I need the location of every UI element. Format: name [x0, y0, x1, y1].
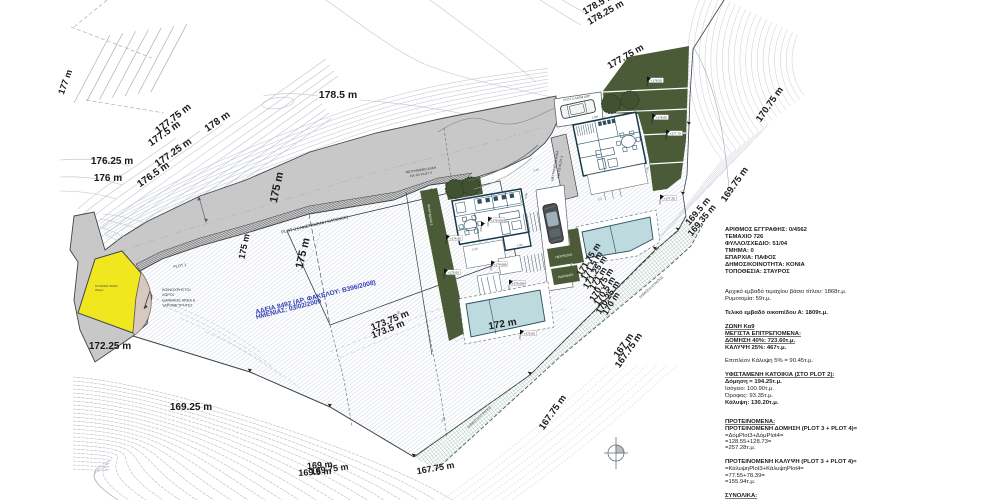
- svg-text:ΥΦΙΣΤΑΜΕΝΗ ΚΑΤΟΙΚΙΑ (ΣΤΟ PLOT: ΥΦΙΣΤΑΜΕΝΗ ΚΑΤΟΙΚΙΑ (ΣΤΟ PLOT 2):: [725, 372, 834, 378]
- svg-text:176 m: 176 m: [94, 173, 122, 184]
- svg-text:ΠΡΟΤΕΙΝΟΜΕΝΗ ΔΟΜΗΣΗ (PLOT 3 +: ΠΡΟΤΕΙΝΟΜΕΝΗ ΔΟΜΗΣΗ (PLOT 3 + PLOT 4)=: [725, 426, 858, 432]
- svg-text:ΜΕΓΙΣΤΑ ΕΠΙΤΡΕΠΟΜΕΝΑ:: ΜΕΓΙΣΤΑ ΕΠΙΤΡΕΠΟΜΕΝΑ:: [725, 331, 801, 337]
- svg-text:172.25 m: 172.25 m: [89, 341, 131, 352]
- svg-text:Ισόγειο: 100.90τ.μ.: Ισόγειο: 100.90τ.μ.: [725, 385, 774, 392]
- svg-text:ΧΩΡΟΙ: ΧΩΡΟΙ: [162, 293, 174, 297]
- svg-text:+175.00: +175.00: [448, 270, 460, 274]
- svg-text:176.25 m: 176.25 m: [91, 156, 133, 167]
- svg-text:=257.28τ.μ.: =257.28τ.μ.: [725, 445, 756, 451]
- svg-text:178.5 m: 178.5 m: [319, 89, 358, 101]
- svg-text:ΠΡΟΤΕΙΝΟΜΕΝΗ ΚΑΛΥΨΗ (PLOT 3 +: ΠΡΟΤΕΙΝΟΜΕΝΗ ΚΑΛΥΨΗ (PLOT 3 + PLOT 4)=: [725, 459, 857, 465]
- svg-text:GARBAGE AREA &: GARBAGE AREA &: [162, 298, 196, 302]
- svg-text:+178.00: +178.00: [656, 115, 668, 119]
- svg-text:ΚΟΙΝΟΧΡΗΣΤΟΙ: ΚΟΙΝΟΧΡΗΣΤΟΙ: [162, 288, 191, 292]
- svg-text:169.25 m: 169.25 m: [170, 402, 212, 413]
- svg-text:+177.20: +177.20: [664, 196, 676, 200]
- svg-text:=ΚάλυψηPlot3+ΚάλυψηPlot4=: =ΚάλυψηPlot3+ΚάλυψηPlot4=: [725, 465, 804, 472]
- svg-text:Όροφος: 93.35τ.μ.: Όροφος: 93.35τ.μ.: [724, 393, 773, 399]
- svg-text:Τελικό εμβαδό οικοπέδου Α: 180: Τελικό εμβαδό οικοπέδου Α: 1809τ.μ.: [725, 310, 828, 316]
- svg-text:Αρχικό εμβαδό τεμαχίου βάσει τ: Αρχικό εμβαδό τεμαχίου βάσει τίτλου: 186…: [725, 288, 847, 295]
- svg-text:ΔΟΜΗΣΗ 40%: 723.60τ.μ.: ΔΟΜΗΣΗ 40%: 723.60τ.μ.: [725, 338, 796, 344]
- svg-text:=ΔόμPlot3+ΔόμPlot4=: =ΔόμPlot3+ΔόμPlot4=: [725, 432, 784, 439]
- svg-text:ΔΗΜΟΣ/ΚΟΙΝΟΤΗΤΑ: ΚΟΝΙΑ: ΔΗΜΟΣ/ΚΟΙΝΟΤΗΤΑ: ΚΟΝΙΑ: [725, 262, 806, 268]
- svg-text:ΚΑΛΥΨΗ 25%: 467τ.μ.: ΚΑΛΥΨΗ 25%: 467τ.μ.: [725, 345, 787, 351]
- svg-text:ΥΔΡΟΜΕΤΡΗΤΕΣ: ΥΔΡΟΜΕΤΡΗΤΕΣ: [162, 304, 193, 308]
- svg-text:ΑΡΙΘΜΟΣ ΕΓΓΡΑΦΗΣ: 0/4562: ΑΡΙΘΜΟΣ ΕΓΓΡΑΦΗΣ: 0/4562: [725, 227, 808, 233]
- svg-text:ΦΥΛΛΟ/ΣΧΕΔΙΟ: 51/04: ΦΥΛΛΟ/ΣΧΕΔΙΟ: 51/04: [725, 241, 788, 247]
- svg-text:ΣΥΝΟΛΙΚΑ:: ΣΥΝΟΛΙΚΑ:: [725, 493, 757, 499]
- svg-text:+177.70: +177.70: [670, 131, 682, 135]
- svg-text:=155.94τ.μ.: =155.94τ.μ.: [725, 479, 756, 485]
- svg-text:169.5 m: 169.5 m: [298, 466, 332, 478]
- svg-text:+174.50: +174.50: [450, 236, 462, 240]
- svg-text:+175.050: +175.050: [491, 218, 504, 222]
- svg-text:Δόμηση = 194.25τ.μ.: Δόμηση = 194.25τ.μ.: [725, 379, 782, 385]
- svg-text:ΕΠΑΡΧΙΑ: ΠΑΦΟΣ: ΕΠΑΡΧΙΑ: ΠΑΦΟΣ: [725, 255, 777, 261]
- svg-text:Επιπλέον Κάλυψη 5% = 90.45τ.μ.: Επιπλέον Κάλυψη 5% = 90.45τ.μ.: [725, 357, 814, 364]
- svg-text:20sqm: 20sqm: [95, 288, 104, 292]
- svg-text:Κάλυψη: 130.20τ.μ.: Κάλυψη: 130.20τ.μ.: [725, 400, 779, 406]
- svg-text:ΤΟΠΟΘΕΣΙΑ: ΣΤΑΥΡΟΣ: ΤΟΠΟΘΕΣΙΑ: ΣΤΑΥΡΟΣ: [725, 269, 790, 275]
- svg-text:+172.00: +172.00: [524, 331, 536, 335]
- svg-text:ΤΕΜΑΧΙΟ 726: ΤΕΜΑΧΙΟ 726: [725, 234, 764, 240]
- svg-text:+178.50: +178.50: [651, 78, 663, 82]
- svg-text:+174.080: +174.080: [494, 262, 507, 266]
- svg-text:+175.080: +175.080: [512, 281, 525, 285]
- svg-text:ΤΜΗΜΑ: 0: ΤΜΗΜΑ: 0: [725, 248, 755, 254]
- svg-text:ΖΩΝΗ Κα9: ΖΩΝΗ Κα9: [725, 324, 755, 330]
- svg-text:Ρυμοτομία: 59τ.μ.: Ρυμοτομία: 59τ.μ.: [725, 296, 772, 302]
- svg-text:ΠΡΟΤΕΙΝΟΜΕΝΑ:: ΠΡΟΤΕΙΝΟΜΕΝΑ:: [725, 419, 775, 425]
